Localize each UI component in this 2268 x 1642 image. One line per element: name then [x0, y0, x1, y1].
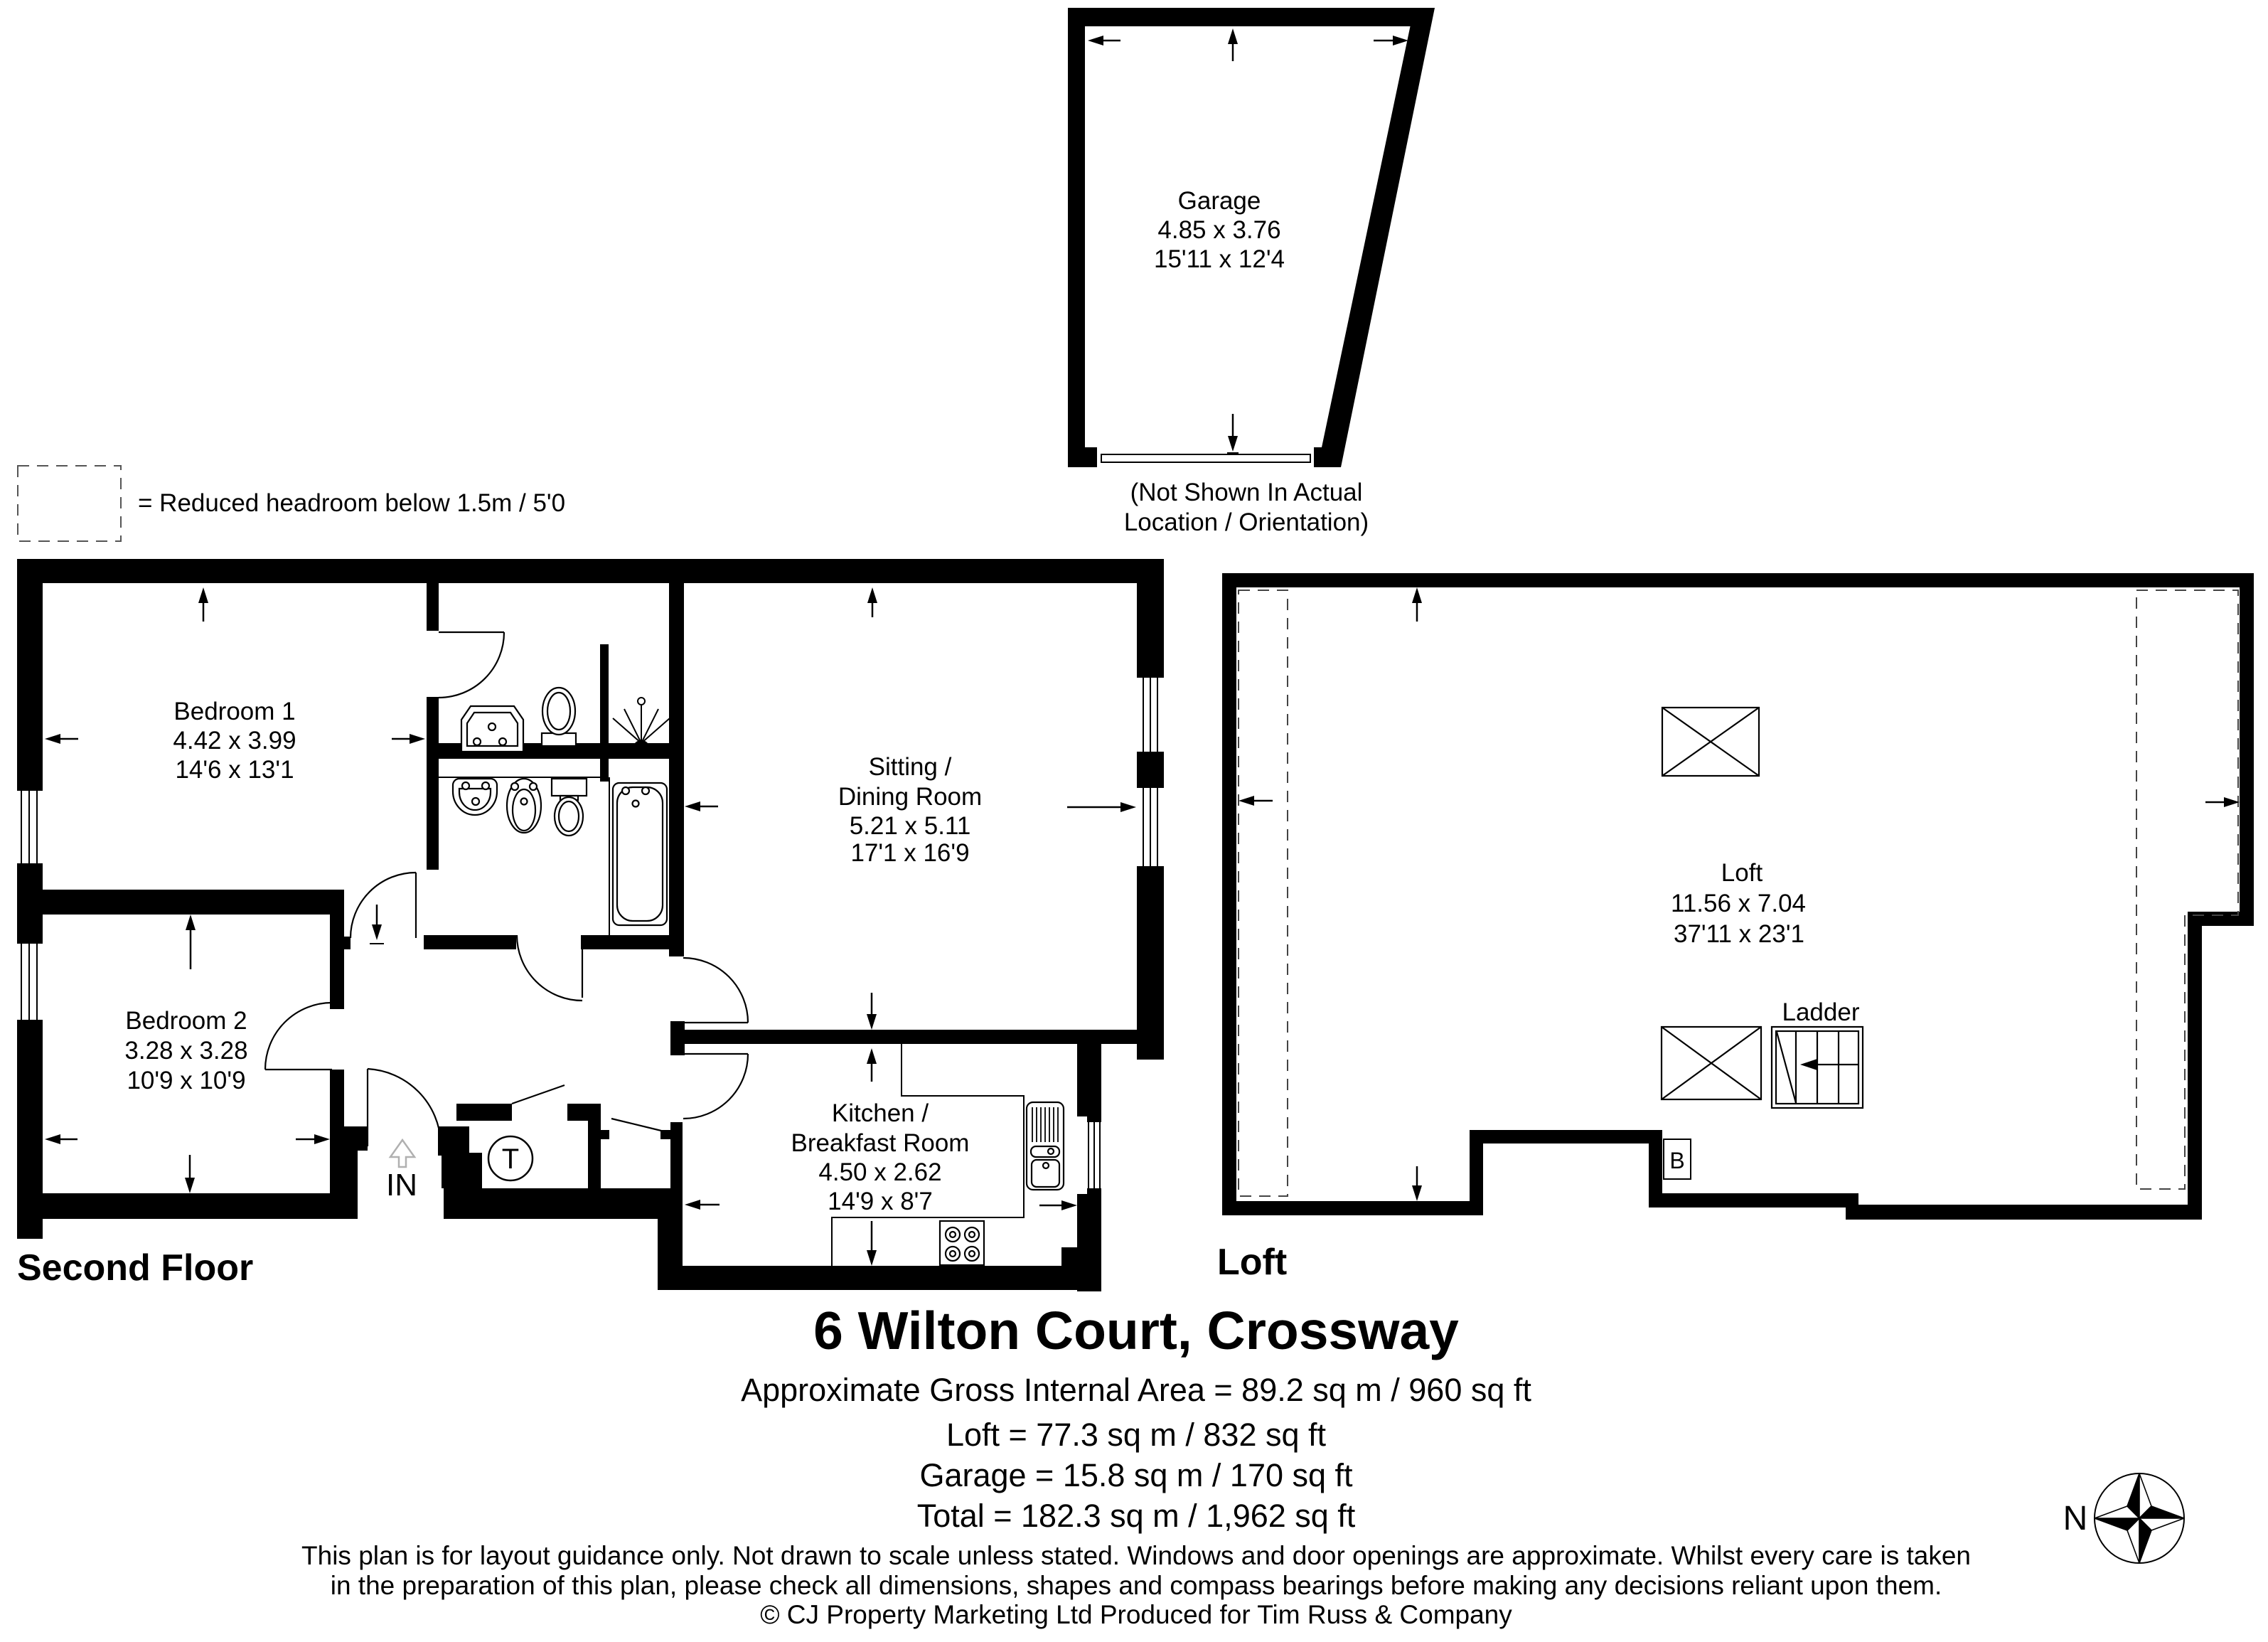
svg-text:This plan is for layout guidan: This plan is for layout guidance only. N… — [301, 1541, 1971, 1570]
svg-text:Sitting /: Sitting / — [869, 753, 952, 781]
svg-text:15'11 x 12'4: 15'11 x 12'4 — [1154, 245, 1285, 273]
svg-text:Location / Orientation): Location / Orientation) — [1124, 508, 1369, 536]
svg-text:Dining Room: Dining Room — [838, 783, 982, 811]
svg-text:Second Floor: Second Floor — [17, 1247, 253, 1289]
svg-text:3.28 x 3.28: 3.28 x 3.28 — [124, 1037, 247, 1065]
svg-text:4.42 x 3.99: 4.42 x 3.99 — [173, 727, 296, 755]
svg-text:11.56 x 7.04: 11.56 x 7.04 — [1671, 890, 1806, 917]
svg-text:B: B — [1669, 1148, 1684, 1173]
svg-text:Loft = 77.3 sq m / 832 sq ft: Loft = 77.3 sq m / 832 sq ft — [946, 1417, 1327, 1453]
svg-text:Bedroom 1: Bedroom 1 — [173, 698, 295, 725]
svg-text:10'9 x 10'9: 10'9 x 10'9 — [127, 1067, 245, 1094]
svg-text:Loft: Loft — [1721, 859, 1763, 887]
svg-text:Loft: Loft — [1217, 1242, 1287, 1283]
svg-text:4.85 x 3.76: 4.85 x 3.76 — [1157, 216, 1280, 244]
svg-text:IN: IN — [386, 1168, 417, 1203]
svg-text:= Reduced headroom below 1.5m: = Reduced headroom below 1.5m / 5'0 — [138, 489, 565, 517]
svg-text:T: T — [502, 1143, 519, 1175]
svg-text:17'1 x 16'9: 17'1 x 16'9 — [850, 839, 969, 867]
svg-text:N: N — [2063, 1500, 2088, 1537]
svg-text:(Not Shown In Actual: (Not Shown In Actual — [1130, 479, 1363, 506]
svg-text:14'9 x 8'7: 14'9 x 8'7 — [828, 1188, 933, 1215]
svg-text:6 Wilton Court, Crossway: 6 Wilton Court, Crossway — [813, 1301, 1459, 1360]
svg-text:5.21 x 5.11: 5.21 x 5.11 — [850, 812, 971, 840]
svg-text:4.50 x 2.62: 4.50 x 2.62 — [818, 1158, 941, 1186]
svg-text:Breakfast Room: Breakfast Room — [791, 1129, 970, 1157]
svg-text:in the preparation of this pla: in the preparation of this plan, please … — [331, 1571, 1942, 1600]
svg-text:Ladder: Ladder — [1782, 998, 1860, 1026]
svg-text:Total = 182.3 sq m / 1,962 sq: Total = 182.3 sq m / 1,962 sq ft — [917, 1498, 1356, 1534]
svg-text:Kitchen /: Kitchen / — [832, 1099, 929, 1127]
svg-text:Approximate Gross Internal Are: Approximate Gross Internal Area = 89.2 s… — [741, 1372, 1531, 1408]
svg-text:Garage: Garage — [1178, 187, 1261, 215]
svg-text:Garage = 15.8 sq m / 170 sq ft: Garage = 15.8 sq m / 170 sq ft — [919, 1457, 1353, 1493]
svg-text:14'6 x 13'1: 14'6 x 13'1 — [175, 756, 294, 784]
svg-text:© CJ Property Marketing Ltd Pr: © CJ Property Marketing Ltd Produced for… — [760, 1600, 1512, 1629]
svg-text:Bedroom 2: Bedroom 2 — [125, 1007, 247, 1035]
svg-text:37'11 x 23'1: 37'11 x 23'1 — [1674, 920, 1804, 948]
